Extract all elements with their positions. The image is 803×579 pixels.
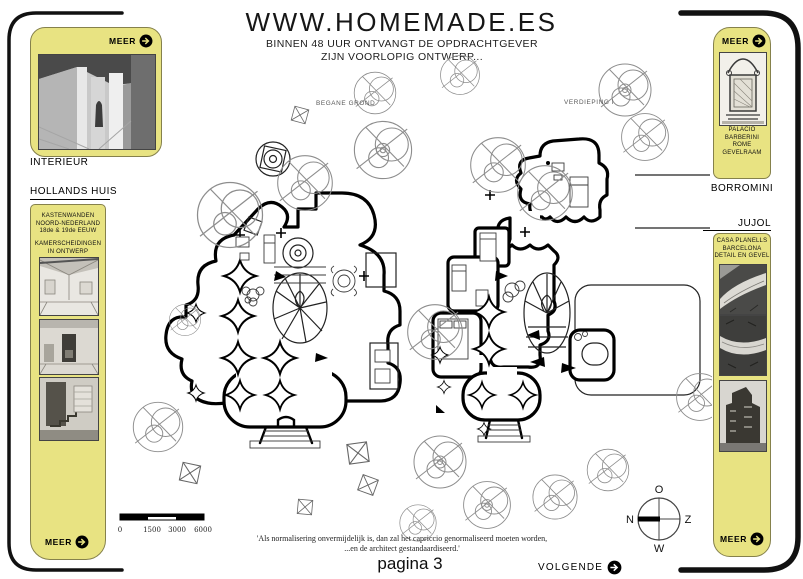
caption-line: DETAIL EN GEVEL	[714, 253, 770, 261]
arrow-right-icon	[607, 560, 622, 575]
meer-button-jujol[interactable]: MEER	[720, 532, 764, 546]
borromini-caption: PALACIO BARBERINI ROME GEVELRAAM	[714, 127, 770, 157]
jujol-caption: CASA PLANELLS BARCELONA DETAIL EN GEVEL	[714, 238, 770, 261]
compass-north-label: N	[626, 514, 634, 526]
caption-line: KASTENWANDEN	[31, 213, 105, 221]
meer-button-interieur[interactable]: MEER	[109, 34, 153, 48]
scale-bar: 0 1500 3000 6000	[118, 514, 212, 534]
compass: O N Z W	[626, 484, 692, 555]
caption-line: KAMERSCHEIDINGEN	[31, 241, 105, 249]
hollands-huis-panel: KASTENWANDEN NOORD-NEDERLAND 18de & 19de…	[30, 204, 106, 560]
subtitle-line-1: BINNEN 48 UUR ONTVANGT DE OPDRACHTGEVER	[202, 38, 602, 51]
compass-west-label: W	[654, 543, 665, 555]
scale-tick-3000: 3000	[168, 526, 186, 534]
quote-line-2: ...en de architect gestandaardiseerd.'	[227, 544, 577, 554]
arrow-right-icon	[75, 535, 89, 549]
scale-tick-1500: 1500	[143, 526, 161, 534]
volgende-button[interactable]: VOLGENDE	[538, 560, 622, 575]
hollands-image-2	[39, 319, 99, 375]
interieur-image	[38, 54, 156, 150]
compass-south-label: Z	[685, 514, 692, 526]
meer-label: MEER	[109, 36, 136, 46]
verdieping-label: VERDIEPING I	[564, 99, 614, 106]
meer-button-hollands[interactable]: MEER	[45, 535, 89, 549]
jujol-image-2	[719, 315, 767, 376]
borromini-panel: MEER PALACIO BARBERINI ROME GEVELRAAM	[713, 27, 771, 179]
hollands-caption-1: KASTENWANDEN NOORD-NEDERLAND 18de & 19de…	[31, 213, 105, 236]
floor-plan-begane-grond	[166, 142, 400, 448]
jujol-title: JUJOL	[703, 218, 771, 231]
jujol-panel: CASA PLANELLS BARCELONA DETAIL EN GEVEL …	[713, 233, 771, 557]
page-number-label: pagina 3	[330, 554, 490, 574]
jujol-image-3	[719, 380, 767, 452]
caption-line: GEVELRAAM	[714, 150, 770, 158]
volgende-label: VOLGENDE	[538, 562, 603, 573]
quote-line-1: 'Als normalisering onvermijdelijk is, da…	[227, 534, 577, 544]
meer-label: MEER	[720, 534, 747, 544]
arrow-right-icon	[750, 532, 764, 546]
plans-canvas: BEGANE GROND VERDIEPING I 0 1500 3000 60…	[100, 55, 712, 560]
caption-line: IN ONTWERP	[31, 249, 105, 257]
scale-tick-6000: 6000	[194, 526, 212, 534]
begane-grond-label: BEGANE GROND	[316, 100, 375, 107]
arrow-right-icon	[752, 34, 766, 48]
borromini-title: BORROMINI	[704, 183, 780, 194]
hollands-image-1	[39, 257, 99, 316]
caption-line: PALACIO BARBERINI	[714, 127, 770, 142]
scale-tick-0: 0	[118, 526, 122, 534]
compass-east-label: O	[655, 484, 664, 496]
meer-button-borromini[interactable]: MEER	[722, 34, 766, 48]
hollands-huis-header: HOLLANDS HUIS	[30, 186, 110, 200]
caption-line: 18de & 19de EEUW	[31, 228, 105, 236]
meer-label: MEER	[45, 537, 72, 547]
page: WWW.HOMEMADE.ES BINNEN 48 UUR ONTVANGT D…	[0, 0, 803, 579]
interieur-panel: MEER	[30, 27, 162, 157]
caption-line: CASA PLANELLS	[714, 238, 770, 246]
hollands-caption-2: KAMERSCHEIDINGEN IN ONTWERP	[31, 241, 105, 256]
caption-line: NOORD-NEDERLAND	[31, 221, 105, 229]
meer-label: MEER	[722, 36, 749, 46]
quote-text: 'Als normalisering onvermijdelijk is, da…	[227, 534, 577, 553]
caption-line: BARCELONA	[714, 246, 770, 254]
hollands-image-3	[39, 377, 99, 441]
caption-line: ROME	[714, 142, 770, 150]
jujol-image-1	[719, 264, 767, 315]
arrow-right-icon	[139, 34, 153, 48]
interieur-caption: INTERIEUR	[30, 157, 88, 168]
borromini-image	[719, 52, 767, 126]
